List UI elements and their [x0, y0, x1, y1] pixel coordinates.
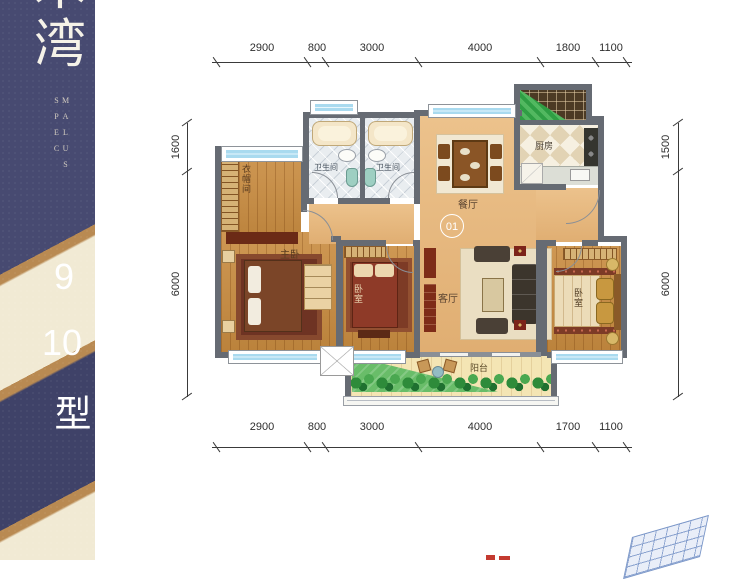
- dim-line: [212, 62, 632, 63]
- balcony-slider: [420, 352, 541, 357]
- dim-value: 1100: [599, 421, 623, 433]
- stove: [584, 128, 598, 166]
- label-dining: 餐厅: [458, 196, 478, 211]
- tv-cabinet: [424, 248, 436, 278]
- nightstand: [222, 320, 235, 333]
- dining-chair: [438, 144, 450, 159]
- label-living: 客厅: [438, 290, 458, 305]
- dim-value: 6000: [660, 272, 672, 296]
- bathtub-inner: [374, 126, 407, 141]
- wall-segment: [598, 116, 604, 190]
- coffee-table: [482, 278, 504, 312]
- dim-value: 3000: [360, 421, 384, 433]
- pillow: [375, 264, 394, 277]
- toilet-left: [346, 168, 358, 187]
- building-number-9: 9: [44, 256, 84, 298]
- wall-segment: [303, 198, 314, 204]
- label-bedroom-mid: 卧室: [352, 284, 365, 304]
- dresser-cabinet: [226, 232, 298, 244]
- wall-segment: [514, 184, 566, 190]
- balcony-table: [432, 366, 444, 378]
- balcony-rail-line: [347, 400, 555, 401]
- dim-value: 1700: [556, 421, 580, 433]
- wall-segment: [338, 198, 390, 204]
- dim-value: 3000: [360, 42, 384, 54]
- window-glass: [556, 354, 618, 360]
- pillow: [596, 302, 614, 324]
- pillow: [354, 264, 373, 277]
- red-mark: [499, 556, 510, 560]
- dim-line: [212, 447, 632, 448]
- sofa-top: [474, 246, 510, 262]
- wall-segment: [582, 240, 598, 246]
- label-bathroom-right: 卫生间: [376, 162, 400, 173]
- kitchen-sink: [570, 169, 590, 181]
- wall-segment: [303, 112, 309, 204]
- dim-value: 1500: [660, 135, 672, 159]
- wall-segment: [360, 118, 365, 198]
- slider-panel: [440, 353, 468, 356]
- sofa-main: [512, 264, 538, 324]
- label-bathroom-left: 卫生间: [314, 162, 338, 173]
- balcony-bushes: [348, 372, 554, 394]
- dim-line: [187, 123, 188, 397]
- window-glass: [349, 354, 401, 360]
- round-side-table: [606, 258, 619, 271]
- window-cloakroom: [221, 146, 303, 162]
- wall-segment: [343, 240, 386, 246]
- plate: [460, 174, 470, 181]
- sink-left: [338, 149, 356, 162]
- wardrobe-bedroom-mid: [344, 246, 386, 258]
- balcony-rail: [343, 396, 559, 406]
- pillow: [248, 298, 261, 325]
- label-bedroom-right: 卧室: [572, 288, 585, 308]
- dim-value: 800: [308, 42, 326, 54]
- wall-segment: [514, 84, 520, 190]
- pillow: [248, 266, 261, 293]
- wall-segment: [414, 240, 420, 358]
- label-kitchen: 厨房: [535, 139, 553, 152]
- dim-value: 1600: [170, 135, 182, 159]
- nightstand: [222, 250, 235, 263]
- floorplan-page: { "sidebar": { "logo_top": "木", "logo": …: [0, 0, 750, 560]
- wall-segment: [514, 84, 592, 90]
- toilet-right: [364, 168, 376, 187]
- window-glass: [233, 354, 317, 360]
- building-type-label: 栋户型: [49, 394, 129, 560]
- pillow: [596, 278, 614, 300]
- headboard: [614, 274, 621, 330]
- window-glass: [433, 108, 511, 114]
- dining-chair: [490, 144, 502, 159]
- wall-segment: [514, 120, 598, 125]
- ac-platform: [320, 346, 354, 376]
- side-table-red: [514, 320, 526, 330]
- window-bedroom-right: [551, 350, 623, 364]
- wall-segment: [536, 240, 547, 356]
- wall-segment: [336, 240, 343, 358]
- bathtub-inner: [318, 126, 351, 141]
- building-number-10: 10: [42, 322, 82, 364]
- dim-value: 4000: [468, 42, 492, 54]
- red-mark: [486, 555, 495, 560]
- sidebar-banner: 木湾 MALUS SPEC 9 10 栋户型: [0, 0, 95, 560]
- wall-segment: [414, 198, 420, 204]
- dining-chair: [438, 166, 450, 181]
- dim-value: 2900: [250, 42, 274, 54]
- bed-bench: [358, 330, 390, 338]
- window-glass: [315, 104, 353, 111]
- wall-segment: [215, 146, 221, 358]
- logo-char: 湾: [34, 15, 86, 75]
- wall-segment: [621, 240, 627, 358]
- sofa-bottom: [476, 318, 508, 334]
- wall-segment: [414, 112, 420, 204]
- dim-value: 1100: [599, 42, 623, 54]
- dresser-master: [304, 264, 332, 310]
- window-bathroom: [310, 100, 358, 115]
- plate: [470, 162, 480, 169]
- mini-floorplan-thumbnail: [623, 515, 709, 579]
- unit-number-badge: 01: [440, 214, 464, 238]
- brand-english: MALUS SPEC: [52, 96, 70, 246]
- dim-value: 2900: [250, 421, 274, 433]
- side-table-red: [514, 246, 526, 256]
- sink-right: [368, 149, 386, 162]
- label-cloakroom: 衣帽间: [240, 164, 253, 194]
- plate: [460, 148, 470, 155]
- fridge: [521, 163, 543, 184]
- rug-edge: [554, 327, 616, 334]
- label-balcony: 阳台: [470, 361, 488, 374]
- brand-logo: 木湾: [26, 0, 94, 74]
- label-master-bedroom: 主卧: [280, 246, 300, 261]
- dim-line: [678, 123, 679, 397]
- wall-segment: [547, 240, 556, 246]
- window-master: [228, 350, 322, 364]
- dim-value: 4000: [468, 421, 492, 433]
- wardrobe-cloakroom: [221, 154, 239, 232]
- window-glass: [226, 150, 298, 158]
- slider-panel: [492, 353, 520, 356]
- dim-value: 6000: [170, 272, 182, 296]
- dim-value: 800: [308, 421, 326, 433]
- window-dining: [428, 104, 516, 118]
- round-side-table: [606, 332, 619, 345]
- tv-cabinet: [424, 284, 436, 332]
- dining-chair: [490, 166, 502, 181]
- dim-value: 1800: [556, 42, 580, 54]
